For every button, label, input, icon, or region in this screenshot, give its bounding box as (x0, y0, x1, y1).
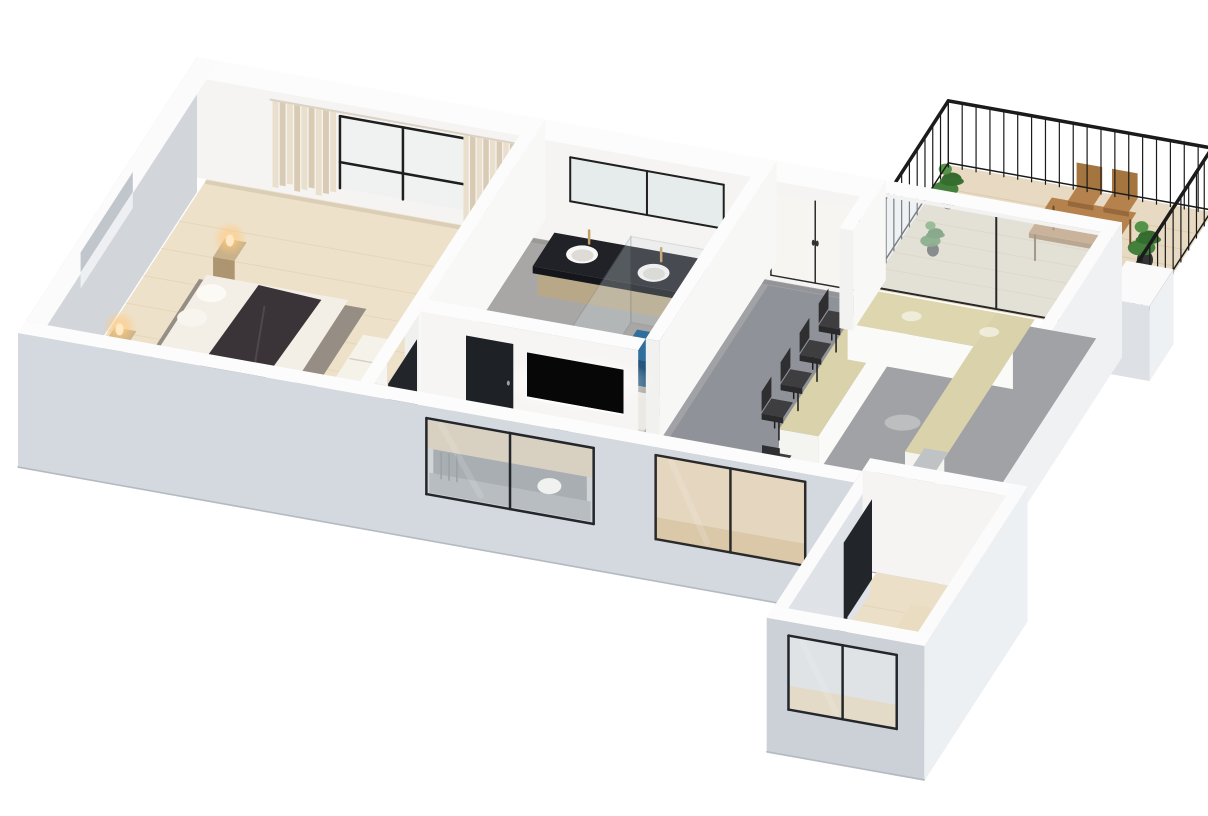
sofa-pillow (537, 478, 561, 494)
bed-pillow (196, 284, 226, 302)
bedroom-curtain-left (294, 105, 300, 192)
bedside-lamp-bulb (116, 323, 124, 335)
bedroom-curtain-left (280, 102, 286, 186)
balcony-plant-foliage (940, 177, 964, 186)
wardrobe-handle (812, 240, 815, 246)
balcony-railing-north-top-rail (948, 101, 1208, 148)
balcony-plant-foliage (1135, 221, 1149, 233)
vessel-sink-basin (571, 249, 593, 261)
bedroom-curtain-left (273, 101, 279, 188)
bed-pillow (177, 309, 207, 327)
counter-light-glow (902, 311, 922, 321)
wardrobe-handle (816, 240, 819, 246)
floorplan-svg (0, 0, 1208, 816)
bedroom-curtain-left (301, 106, 307, 190)
bedroom-curtain-left (316, 109, 322, 196)
bedroom-curtain-right (463, 135, 468, 222)
bedside-lamp-bulb (226, 235, 234, 247)
bedroom-curtain-left (287, 104, 293, 185)
floorplan-stage (0, 0, 1208, 816)
floor-light-glow (885, 415, 921, 431)
bedroom-curtain-left (309, 107, 315, 188)
bedroom-curtain-left (323, 110, 329, 194)
scene-root (18, 57, 1208, 781)
door-handle (507, 381, 510, 386)
bedroom-curtain-left (330, 111, 336, 192)
counter-light-glow (979, 327, 999, 337)
hall-wall-stub-south (839, 228, 853, 330)
